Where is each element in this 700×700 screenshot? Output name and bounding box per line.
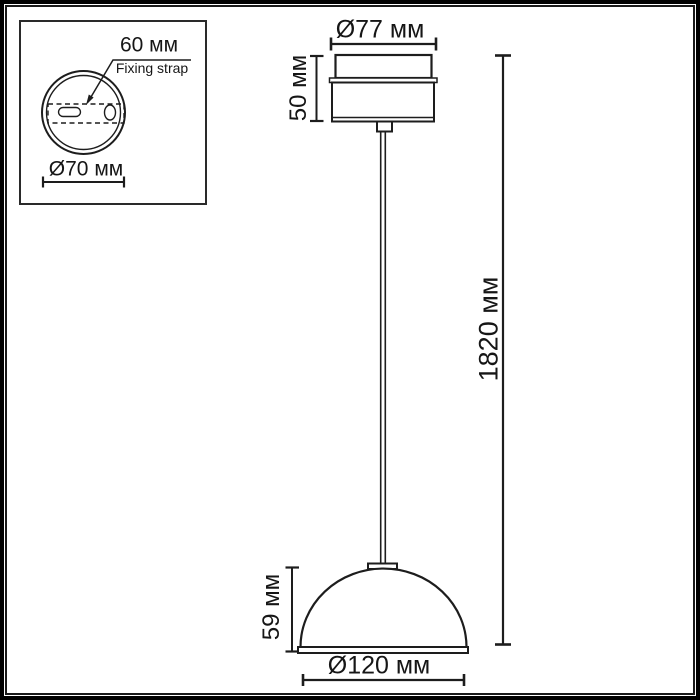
- canopy-outer-circle: [42, 71, 125, 154]
- canopy-inner-circle: [47, 76, 121, 150]
- canopy-top-diameter-label: Ø70 мм: [49, 159, 123, 180]
- cord-grip: [377, 122, 392, 132]
- canopy-front-view: [310, 38, 437, 132]
- pendant-lamp-technical-drawing: [0, 0, 700, 700]
- canopy-diameter-label: Ø77 мм: [336, 18, 425, 43]
- suspension-cord: [381, 132, 386, 565]
- fixing-strap-label: Fixing strap: [116, 61, 188, 75]
- canopy-body: [332, 83, 434, 122]
- dimension-drawing-page: 60 мм Fixing strap Ø70 мм Ø77 мм 50 мм 1…: [0, 0, 700, 700]
- shade-dome: [301, 569, 467, 647]
- shade-height-label: 59 мм: [260, 574, 284, 640]
- strap-slot: [59, 108, 81, 117]
- strap-length-label: 60 мм: [120, 35, 178, 56]
- canopy-mount-ring: [336, 55, 432, 78]
- shade-diameter-label: Ø120 мм: [328, 654, 430, 679]
- overall-height-label: 1820 мм: [476, 277, 503, 382]
- canopy-height-label: 50 мм: [287, 55, 311, 121]
- strap-hole: [105, 105, 116, 120]
- fixing-strap-outline: [48, 104, 124, 123]
